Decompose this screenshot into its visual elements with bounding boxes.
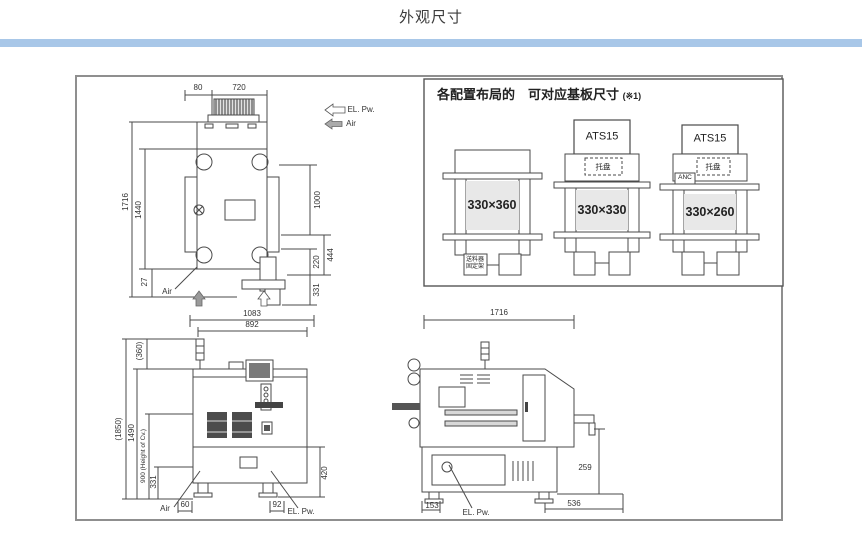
anc-label: ANC — [678, 175, 692, 182]
dim-label-1716-top: 1716 — [122, 193, 130, 211]
tray-label-config2: 托盘 — [596, 163, 611, 171]
dimension-diagram-container: 各配置布局的 可对应基板尺寸 (※1) 330×360 330×330 330×… — [75, 75, 783, 521]
board-size-label-3: 330×260 — [685, 206, 734, 219]
config-panel-title-text: 各配置布局的 可对应基板尺寸 — [437, 87, 619, 102]
dim-label-444: 444 — [327, 248, 335, 261]
dim-label-27: 27 — [141, 278, 149, 287]
dim-label-536: 536 — [567, 500, 580, 508]
dim-label-360: (360) — [136, 342, 144, 361]
side-view-drawing — [392, 315, 623, 513]
dim-label-1716-side: 1716 — [490, 309, 508, 317]
arrow-left-el-pw-icon — [325, 104, 345, 116]
ats15-label-config2: ATS15 — [586, 132, 619, 143]
el-pw-label-side-view: EL. Pw. — [462, 509, 489, 517]
dim-label-331-top: 331 — [313, 283, 321, 296]
dim-label-92: 92 — [273, 501, 282, 509]
el-pw-label-top-view: EL. Pw. — [347, 106, 374, 114]
feeder-fixture-label: 送料器 固定架 — [466, 257, 484, 271]
dim-label-1000: 1000 — [314, 191, 322, 209]
dim-label-1440: 1440 — [135, 201, 143, 219]
dim-label-220: 220 — [313, 255, 321, 268]
page-title: 外观尺寸 — [0, 6, 862, 27]
feeder-fixture-label-line1: 送料器 — [466, 257, 484, 264]
feeder-fixture-label-line2: 固定架 — [466, 264, 484, 271]
tray-label-config3: 托盘 — [706, 163, 721, 171]
air-in-label-top-view: Air — [346, 120, 356, 128]
el-pw-label-front-view: EL. Pw. — [287, 508, 314, 516]
dim-label-420: 420 — [321, 466, 329, 479]
technical-drawing-canvas — [77, 77, 785, 523]
dim-label-1490: 1490 — [128, 424, 136, 442]
dim-label-720: 720 — [232, 84, 245, 92]
dim-label-900-height-of-cv: 900 (Height of Cv.) — [141, 429, 148, 483]
board-size-label-1: 330×360 — [467, 199, 516, 212]
dim-label-331-front: 331 — [150, 475, 158, 488]
arrow-up-air-icon — [193, 291, 205, 306]
board-size-label-2: 330×330 — [577, 204, 626, 217]
dim-label-1850: (1850) — [115, 417, 123, 440]
ats15-label-config3: ATS15 — [694, 134, 727, 145]
dim-label-1083: 1083 — [243, 310, 261, 318]
dim-label-60: 60 — [181, 501, 190, 509]
arrow-left-air-icon — [325, 119, 342, 129]
config-panel-title-note: (※1) — [623, 91, 642, 101]
dim-label-80: 80 — [194, 84, 203, 92]
accent-bar — [0, 39, 862, 47]
config-panel-title: 各配置布局的 可对应基板尺寸 (※1) — [437, 84, 641, 103]
air-label-front-view: Air — [160, 505, 170, 513]
dim-label-892: 892 — [245, 321, 258, 329]
air-label-top-view: Air — [162, 288, 172, 296]
dim-label-259: 259 — [578, 464, 591, 472]
dim-label-153: 153 — [425, 502, 438, 510]
top-view-drawing — [129, 90, 331, 305]
config-panel-drawing — [424, 79, 783, 286]
